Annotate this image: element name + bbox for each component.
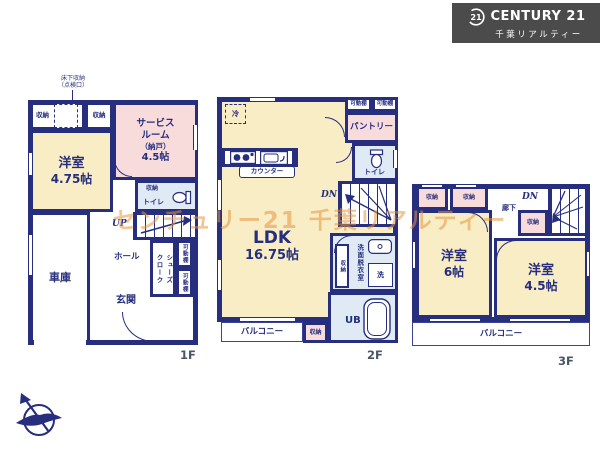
room-western-1f-size: 4.75帖 <box>51 172 93 186</box>
toilet-1f-storage-label: 収納 <box>146 185 158 192</box>
toilet-icon-1f <box>172 190 192 205</box>
movable-shelf-2f-right: 可動棚 <box>372 97 398 112</box>
storage-2f-bottom-label: 収納 <box>309 329 321 336</box>
pantry-room: パントリー <box>345 112 398 143</box>
stairs-2f-arrow <box>341 184 395 224</box>
service-room-label-2: ルーム <box>141 130 169 141</box>
closet-1f-mid: 収納 <box>85 102 113 130</box>
storage-2f-bottom: 収納 <box>303 322 328 343</box>
unit-bath-label: UB <box>345 315 361 327</box>
underfloor-hatch-box <box>54 104 78 128</box>
movable-shelf-1f-top-label: 可動棚 <box>181 244 188 264</box>
floor-plan-1f: 床下収納 （点検口） 収納 収納 サービス ルーム （納戸） 4.5帖 洋室 4… <box>28 95 203 355</box>
floor2-label: 2F <box>367 348 383 362</box>
room-western-6-size: 6帖 <box>444 265 464 279</box>
closet-1f-mid-label: 収納 <box>93 112 106 120</box>
stairs-2f-dn-label: DN <box>321 190 337 200</box>
garage-label: 車庫 <box>49 271 71 284</box>
stairs-1f-up-label: UP <box>112 219 127 229</box>
window-2f-right <box>393 150 398 168</box>
closet-3f-a-label: 収納 <box>426 194 438 201</box>
room-western-1f: 洋室 4.75帖 <box>30 130 113 212</box>
window-3f-left <box>412 242 416 268</box>
window-3f-right <box>586 252 590 276</box>
toilet-icon-2f <box>369 149 384 169</box>
ldk-room-label: LDK 16.75帖 <box>242 228 302 264</box>
window-3f-top-2 <box>456 184 476 188</box>
toilet-room-1f: 収納 トイレ <box>135 180 198 212</box>
shoes-closet-label-1: シューズ <box>164 254 172 284</box>
ldk-label: LDK <box>242 228 302 248</box>
counter-label: カウンター <box>251 168 284 176</box>
corridor-label: 廊下 <box>502 204 516 212</box>
balcony-3f-label: バルコニー <box>480 329 522 339</box>
movable-shelf-2f-left-label: 可動棚 <box>350 101 367 108</box>
room-western-45-size: 4.5帖 <box>524 279 557 293</box>
garage-room: 車庫 <box>30 212 90 343</box>
unit-bath-room: UB <box>328 292 398 343</box>
balcony-2f-sliding-door <box>240 317 295 322</box>
fridge-label: 冷 <box>232 110 239 118</box>
c21-seal-number: 21 <box>471 11 483 21</box>
logo-subtitle-text: 千葉リアルティー <box>495 28 582 40</box>
counter-end-wall <box>293 148 298 167</box>
room-western-1f-label: 洋室 <box>58 156 84 172</box>
movable-shelf-2f-right-label: 可動棚 <box>377 101 394 108</box>
fridge-space: 冷 <box>225 104 246 124</box>
north-compass-icon <box>12 390 66 444</box>
bathtub-icon <box>363 298 391 340</box>
pantry-label: パントリー <box>350 122 393 132</box>
toilet-room-2f: トイレ <box>352 143 398 181</box>
window-2f-left-1 <box>217 180 222 210</box>
washroom-storage-label: 収納 <box>339 260 346 273</box>
movable-shelf-1f-bottom-label: 可動棚 <box>181 273 188 293</box>
c21-seal-icon: 21 <box>466 7 486 27</box>
closet-1f-left-label: 収納 <box>36 112 49 120</box>
closet-3f-b: 収納 <box>450 186 488 210</box>
floorplan-image: 21 CENTURY 21 千葉リアルティー センチュリー21 千葉リアルティー… <box>0 0 600 450</box>
century21-logo: 21 CENTURY 21 千葉リアルティー <box>452 3 600 43</box>
counter-label-box: カウンター <box>239 166 295 178</box>
balcony-2f: バルコニー <box>221 322 303 342</box>
closet-3f-c-label: 収納 <box>527 219 539 226</box>
stairs-1f <box>133 212 198 240</box>
floor3-label: 3F <box>558 354 574 368</box>
window-3f-top-1 <box>422 184 442 188</box>
room-western-45-label: 洋室 <box>528 263 554 279</box>
stairs-2f <box>338 181 398 227</box>
ldk-size: 16.75帖 <box>242 248 302 264</box>
movable-shelf-1f-top: 可動棚 <box>176 240 193 268</box>
washer-box: 洗 <box>368 263 393 287</box>
service-room-label-1: サービス <box>136 118 174 129</box>
hall-label: ホール <box>114 252 140 262</box>
stairs-3f <box>548 186 588 236</box>
balcony-3f-sliding-door-2 <box>510 318 570 322</box>
floor-plan-3f: 収納 収納 廊下 収納 DN 洋室 6帖 洋室 <box>410 182 594 377</box>
kitchen-counter <box>222 148 295 167</box>
floor1-label: 1F <box>180 348 196 362</box>
window-2f-top <box>250 97 275 102</box>
movable-shelf-2f-left: 可動棚 <box>345 97 372 112</box>
shoes-closet: シューズ クローク <box>150 240 176 297</box>
closet-3f-b-label: 収納 <box>463 194 475 201</box>
closet-3f-a: 収納 <box>416 186 448 210</box>
window-1f-service-right <box>193 125 198 150</box>
washroom-label: 洗面脱衣室 <box>355 244 363 282</box>
underfloor-leader-line <box>72 90 73 100</box>
room-western-6-label: 洋室 <box>441 249 467 265</box>
floor-plan-2f: 冷 可動棚 可動棚 パントリー カウ <box>215 95 400 355</box>
entrance-label: 玄関 <box>116 295 136 307</box>
window-1f-garage-left <box>28 235 33 275</box>
stairs-1f-arrow <box>136 215 195 237</box>
balcony-3f: バルコニー <box>412 322 590 346</box>
shoes-closet-label-2: クローク <box>154 254 162 284</box>
balcony-3f-sliding-door-1 <box>430 318 480 322</box>
stairs-3f-dn-label: DN <box>522 192 538 202</box>
washer-label: 洗 <box>377 271 384 279</box>
window-1f-left <box>28 153 33 175</box>
service-room-size: 4.5帖 <box>142 152 170 164</box>
movable-shelf-1f-bottom: 可動棚 <box>176 268 193 297</box>
sink-icon <box>260 151 288 165</box>
closet-3f-c: 収納 <box>518 210 548 236</box>
logo-brand-text: CENTURY 21 <box>490 9 585 24</box>
garage-front-opening <box>34 339 86 345</box>
stove-icon <box>230 151 256 164</box>
washbasin-icon <box>368 239 392 254</box>
window-2f-left-2 <box>217 260 222 290</box>
balcony-2f-label: バルコニー <box>241 327 283 337</box>
service-room-label-3: （納戸） <box>141 142 171 151</box>
stairs-3f-arrow <box>551 189 585 233</box>
toilet-1f-label: トイレ <box>143 198 164 206</box>
underfloor-storage-note: 床下収納 （点検口） <box>38 75 108 89</box>
